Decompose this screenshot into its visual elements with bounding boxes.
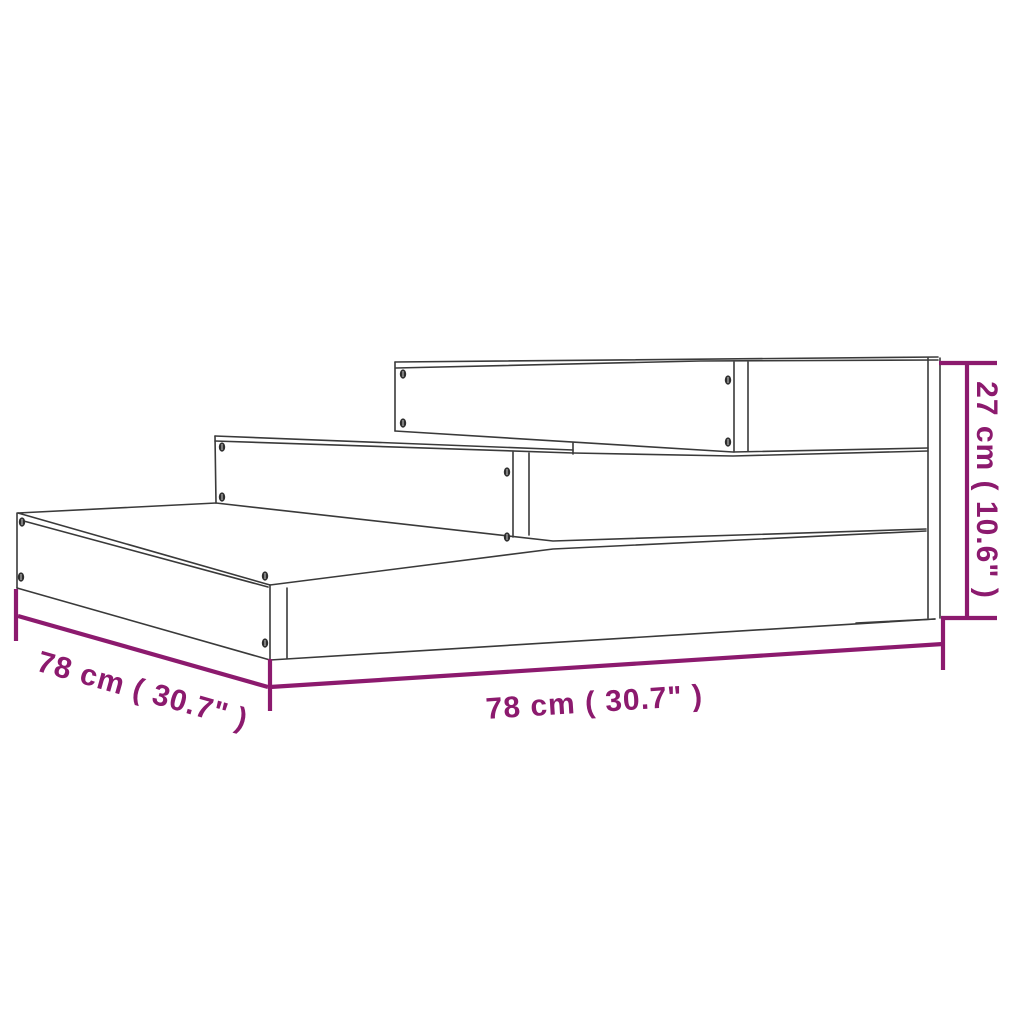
top-tier-bottom-edge [395, 431, 928, 452]
bottom-tier-left-top-sliver [20, 520, 268, 587]
screw-icon [219, 442, 225, 451]
middle-tier [215, 436, 928, 541]
bottom-tier-right-bottom-edge [856, 619, 935, 623]
screw-icon [18, 572, 24, 581]
bottom-tier [17, 503, 935, 660]
screw-icon [19, 517, 25, 526]
middle-tier-top-edge [215, 441, 928, 456]
side-depth-label: 78 cm ( 30.7" ) [33, 645, 251, 736]
screw-icon [262, 571, 268, 580]
screw-icon [504, 467, 510, 476]
screw-icon [725, 437, 731, 446]
screw-icon [504, 532, 510, 541]
middle-tier-bottom-edge [216, 503, 926, 541]
front-width-label: 78 cm ( 30.7" ) [485, 679, 704, 726]
dimension-front-width [270, 618, 943, 687]
screws [18, 369, 731, 647]
dimension-line [270, 644, 943, 687]
screw-icon [725, 375, 731, 384]
planter-dimension-diagram: 78 cm ( 30.7" ) 78 cm ( 30.7" ) 27 cm ( … [0, 0, 1024, 1024]
screw-icon [262, 638, 268, 647]
bottom-tier-front-bottom-edge [270, 619, 935, 660]
planter-line-drawing [17, 357, 940, 660]
bottom-tier-back-sliver [18, 503, 216, 513]
screw-icon [219, 492, 225, 501]
middle-tier-left-edge [215, 436, 216, 503]
height-label: 27 cm ( 10.6" ) [970, 381, 1003, 599]
screw-icon [400, 369, 406, 378]
screw-icon [400, 418, 406, 427]
top-tier [395, 357, 940, 618]
bottom-tier-left-top-edge [18, 513, 270, 585]
diagram-canvas: 78 cm ( 30.7" ) 78 cm ( 30.7" ) 27 cm ( … [0, 0, 1024, 1024]
